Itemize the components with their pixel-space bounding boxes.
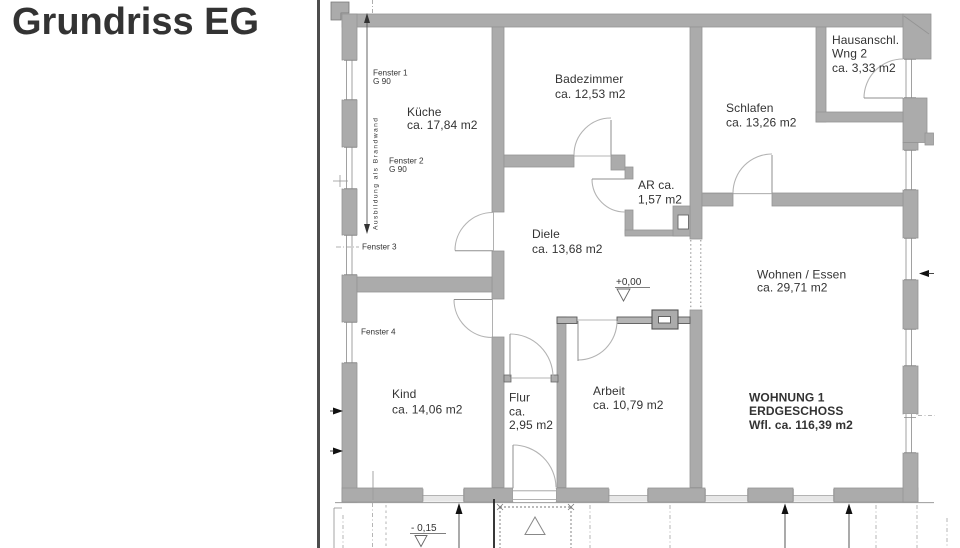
svg-text:Kind: Kind bbox=[392, 387, 416, 401]
svg-text:- 0,15: - 0,15 bbox=[411, 523, 437, 534]
svg-text:Wohnen / Essen: Wohnen / Essen bbox=[757, 268, 846, 282]
svg-text:Wng 2: Wng 2 bbox=[832, 47, 867, 61]
svg-text:WOHNUNG 1: WOHNUNG 1 bbox=[749, 391, 825, 405]
svg-text:ca. 10,79 m2: ca. 10,79 m2 bbox=[593, 398, 664, 412]
svg-text:Hausanschl.: Hausanschl. bbox=[832, 33, 899, 47]
svg-text:ERDGESCHOSS: ERDGESCHOSS bbox=[749, 404, 843, 418]
svg-text:Arbeit: Arbeit bbox=[593, 384, 626, 398]
svg-text:ca. 29,71 m2: ca. 29,71 m2 bbox=[757, 281, 828, 295]
svg-text:AR ca.: AR ca. bbox=[638, 178, 675, 192]
svg-text:+0,00: +0,00 bbox=[616, 277, 642, 288]
svg-text:G 90: G 90 bbox=[373, 77, 391, 86]
svg-text:ca. 17,84 m2: ca. 17,84 m2 bbox=[407, 118, 478, 132]
svg-text:ca. 14,06 m2: ca. 14,06 m2 bbox=[392, 403, 463, 417]
svg-text:Badezimmer: Badezimmer bbox=[555, 72, 623, 86]
svg-text:ca. 3,33 m2: ca. 3,33 m2 bbox=[832, 61, 896, 75]
svg-text:Fenster 3: Fenster 3 bbox=[362, 243, 397, 252]
svg-text:ca. 13,26 m2: ca. 13,26 m2 bbox=[726, 116, 797, 130]
svg-text:Fenster 4: Fenster 4 bbox=[361, 328, 396, 337]
svg-text:Diele: Diele bbox=[532, 227, 560, 241]
svg-text:Küche: Küche bbox=[407, 105, 442, 119]
svg-text:2,95 m2: 2,95 m2 bbox=[509, 418, 553, 432]
svg-text:Ausbildung als Brandwand: Ausbildung als Brandwand bbox=[373, 118, 380, 230]
svg-text:Wfl. ca. 116,39 m2: Wfl. ca. 116,39 m2 bbox=[749, 418, 853, 432]
svg-text:Flur: Flur bbox=[509, 391, 530, 405]
svg-text:1,57 m2: 1,57 m2 bbox=[638, 193, 682, 207]
svg-text:ca.: ca. bbox=[509, 405, 525, 419]
svg-text:ca. 13,68 m2: ca. 13,68 m2 bbox=[532, 242, 603, 256]
svg-text:G 90: G 90 bbox=[389, 165, 407, 174]
svg-text:ca. 12,53 m2: ca. 12,53 m2 bbox=[555, 87, 626, 101]
svg-text:Schlafen: Schlafen bbox=[726, 101, 774, 115]
